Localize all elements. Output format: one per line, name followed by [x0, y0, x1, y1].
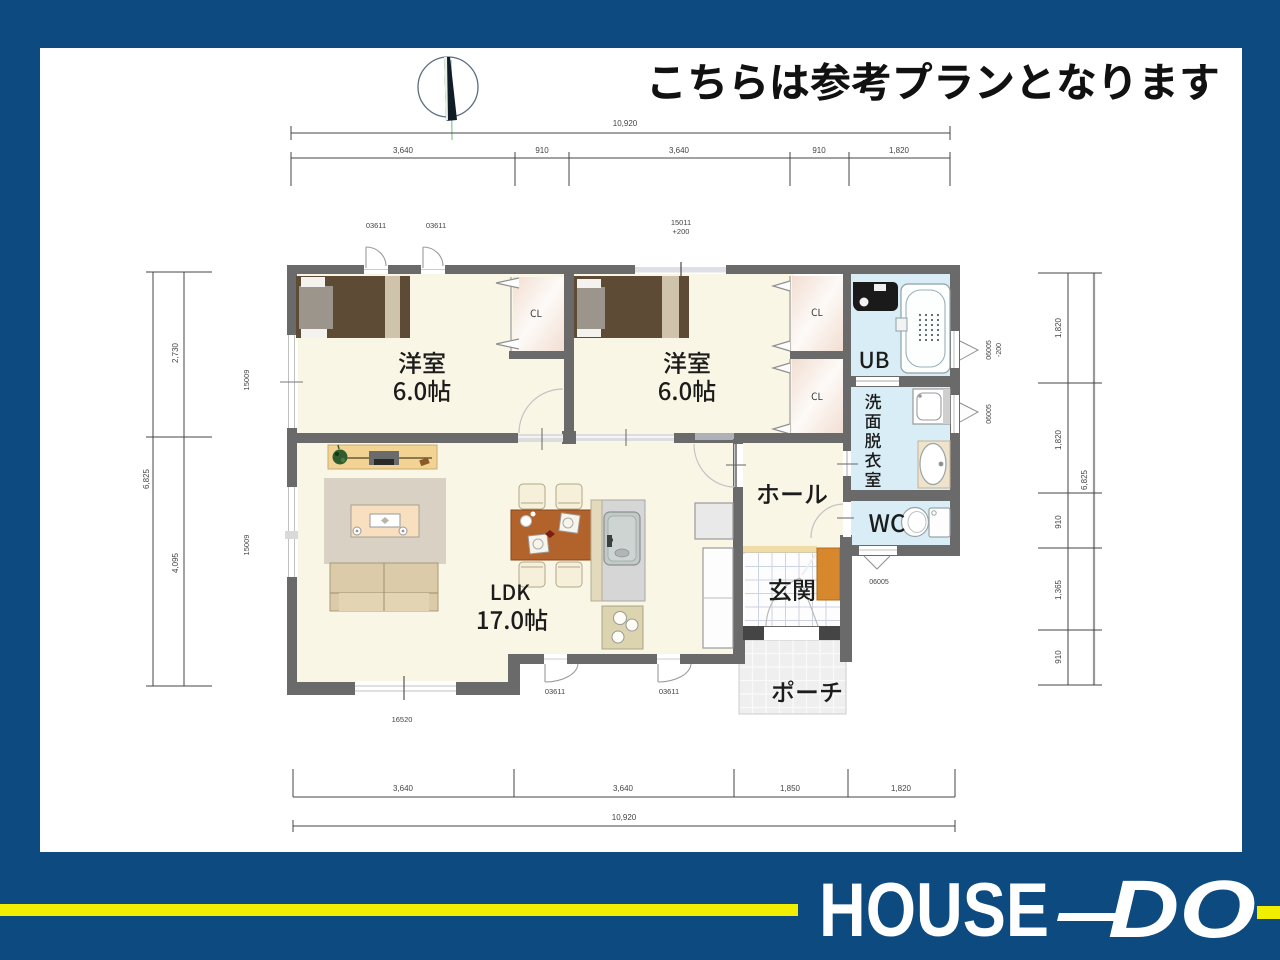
svg-text:16520: 16520 — [392, 715, 413, 724]
svg-text:15009: 15009 — [242, 370, 251, 391]
svg-text:1,820: 1,820 — [889, 146, 910, 155]
svg-text:3,640: 3,640 — [613, 784, 634, 793]
svg-text:03611: 03611 — [545, 687, 565, 696]
svg-text:1,820: 1,820 — [1054, 429, 1063, 450]
svg-text:+200: +200 — [673, 227, 690, 236]
svg-text:6,825: 6,825 — [142, 468, 151, 489]
svg-text:1,820: 1,820 — [891, 784, 912, 793]
svg-text:DO: DO — [1108, 864, 1256, 955]
svg-text:3,640: 3,640 — [393, 784, 414, 793]
svg-text:4,095: 4,095 — [171, 552, 180, 573]
svg-text:910: 910 — [1054, 515, 1063, 529]
svg-text:910: 910 — [812, 146, 826, 155]
svg-text:15009: 15009 — [242, 535, 251, 556]
svg-text:06005: 06005 — [986, 404, 993, 424]
svg-text:910: 910 — [535, 146, 549, 155]
svg-text:1,850: 1,850 — [780, 784, 801, 793]
svg-text:-200: -200 — [996, 343, 1003, 357]
svg-text:1,820: 1,820 — [1054, 317, 1063, 338]
svg-text:910: 910 — [1054, 650, 1063, 664]
svg-text:HOUSE: HOUSE — [819, 868, 1049, 953]
svg-text:3,640: 3,640 — [669, 146, 690, 155]
svg-text:15011: 15011 — [671, 218, 691, 227]
svg-text:3,640: 3,640 — [393, 146, 414, 155]
svg-text:03611: 03611 — [366, 221, 386, 230]
svg-text:10,920: 10,920 — [613, 119, 638, 128]
svg-text:2,730: 2,730 — [171, 342, 180, 363]
svg-text:10,920: 10,920 — [612, 813, 637, 822]
svg-text:6,825: 6,825 — [1080, 469, 1089, 490]
svg-text:06005: 06005 — [986, 340, 993, 360]
svg-text:03611: 03611 — [659, 687, 679, 696]
svg-text:03611: 03611 — [426, 221, 446, 230]
svg-text:1,365: 1,365 — [1054, 579, 1063, 600]
svg-text:06005: 06005 — [869, 579, 889, 586]
